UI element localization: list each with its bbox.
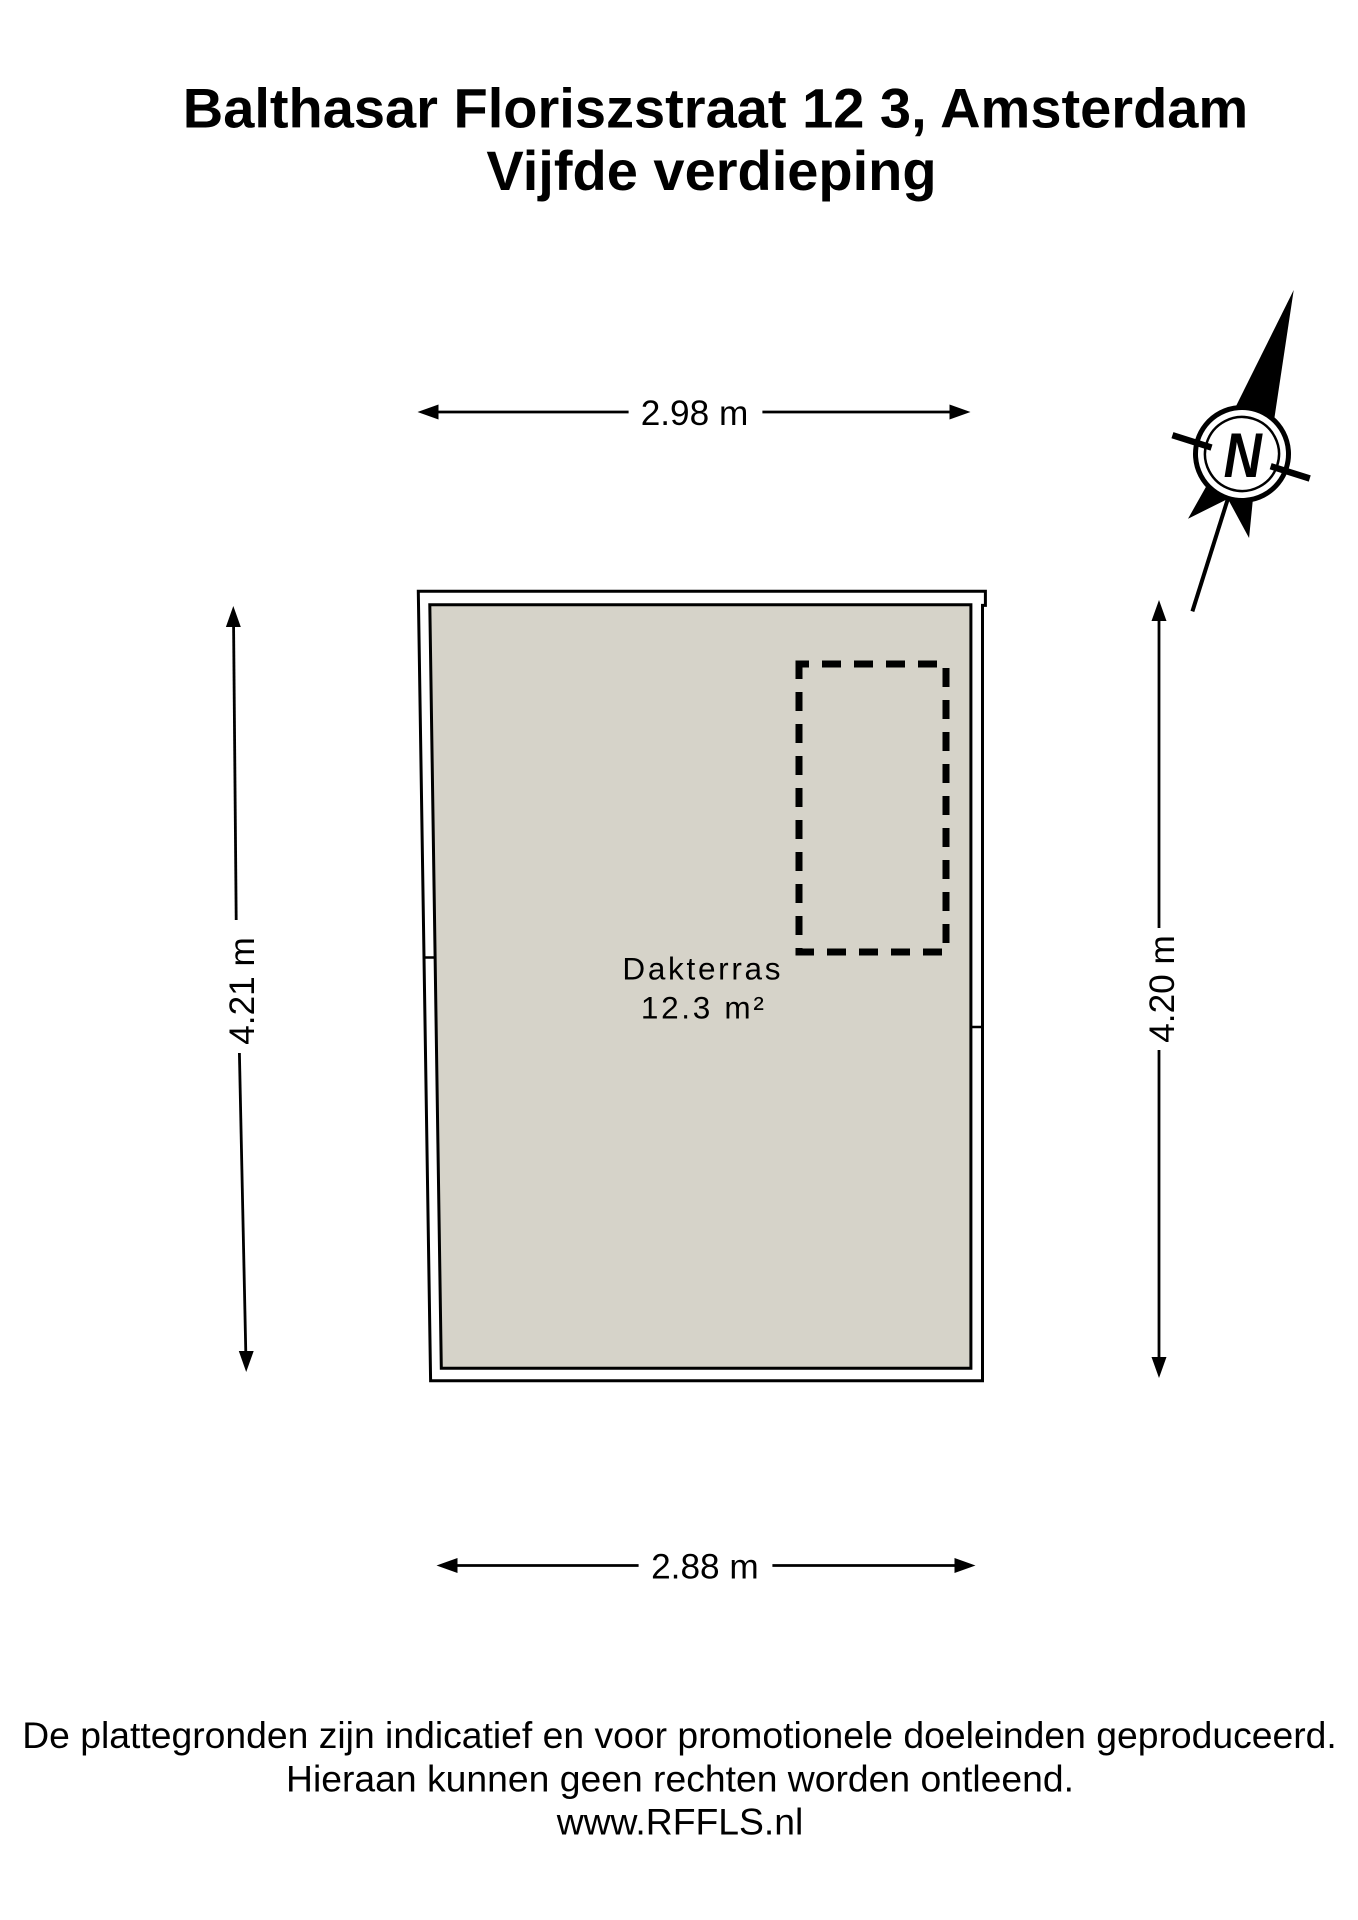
svg-text:Dakterras: Dakterras	[622, 951, 783, 987]
svg-text:4.20 m: 4.20 m	[1143, 935, 1182, 1043]
svg-text:Hieraan kunnen geen rechten wo: Hieraan kunnen geen rechten worden ontle…	[286, 1757, 1074, 1799]
svg-text:Vijfde verdieping: Vijfde verdieping	[486, 139, 936, 202]
svg-text:12.3 m²: 12.3 m²	[641, 989, 767, 1025]
svg-text:Balthasar Floriszstraat 12 3,: Balthasar Floriszstraat 12 3, Amsterdam	[183, 77, 1248, 140]
svg-text:N: N	[1224, 421, 1263, 491]
svg-text:2.98 m: 2.98 m	[641, 394, 749, 433]
svg-text:www.RFFLS.nl: www.RFFLS.nl	[556, 1801, 804, 1843]
svg-text:4.21 m: 4.21 m	[223, 937, 262, 1045]
svg-text:De plattegronden zijn indicati: De plattegronden zijn indicatief en voor…	[22, 1714, 1337, 1756]
svg-text:2.88 m: 2.88 m	[651, 1548, 759, 1587]
